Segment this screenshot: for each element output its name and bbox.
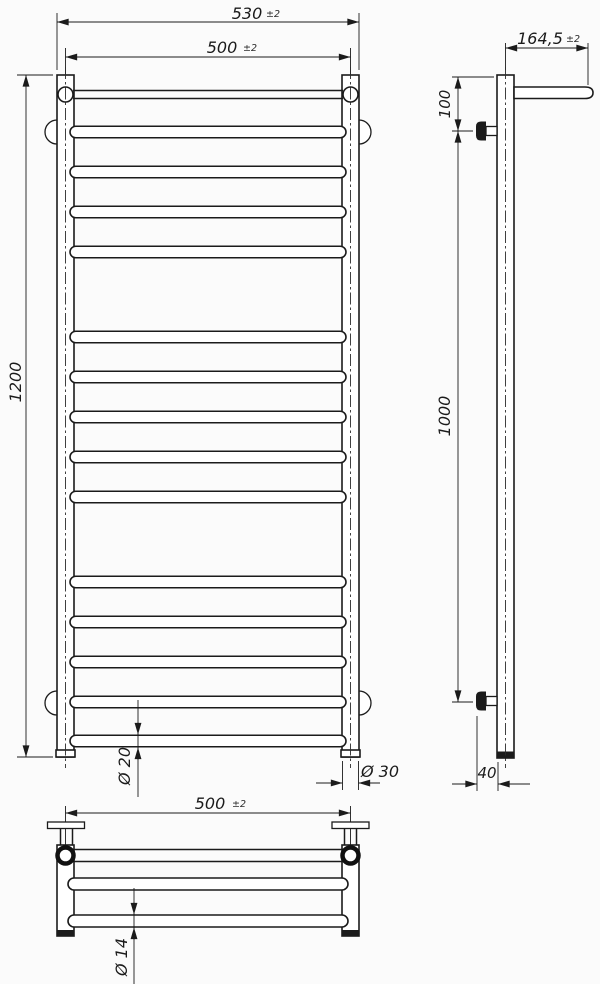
dim-height: 1200: [6, 75, 53, 757]
front-view: 530 ±2 500 ±2 1200: [6, 4, 399, 797]
bottom-left-flange: [48, 822, 85, 846]
rung: [70, 616, 346, 628]
dim-bracket-span: 1000: [435, 131, 473, 702]
shelf-tube: [68, 878, 348, 890]
drawing-canvas: 530 ±2 500 ±2 1200: [0, 0, 600, 984]
bottom-tubes: [68, 878, 348, 927]
dim-outer-width-tolerance: ±2: [266, 9, 280, 20]
rung: [70, 576, 346, 588]
dim-bracket-span-value: 1000: [435, 396, 454, 437]
side-bottom-bracket: [476, 692, 497, 711]
side-view: 164,5 ±2 100 1000: [435, 29, 593, 791]
dim-inner-width-tolerance: ±2: [243, 43, 257, 54]
dim-depth-tolerance: ±2: [566, 34, 580, 45]
bottom-left-post-end: [57, 930, 74, 936]
rung: [70, 411, 346, 423]
rung: [70, 491, 346, 503]
dim-bottom-width-value: 500: [195, 794, 226, 813]
side-top-bracket: [476, 122, 497, 141]
rung: [70, 371, 346, 383]
dim-depth-value: 164,5: [517, 29, 563, 48]
rung: [70, 656, 346, 668]
rung: [70, 166, 346, 178]
rung: [70, 451, 346, 463]
dim-outer-width: 530 ±2: [57, 4, 359, 70]
dim-top-offset-value: 100: [436, 90, 454, 119]
dim-tube-diameter: Ø 14: [112, 888, 134, 984]
shelf-tube: [68, 915, 348, 927]
front-rungs: [70, 126, 346, 747]
rung: [70, 735, 346, 747]
rung: [70, 696, 346, 708]
side-shelf-arm: [514, 87, 593, 99]
dim-rung-diameter: Ø 20: [115, 700, 138, 797]
bottom-view: 500 ±2 Ø 14: [48, 794, 370, 984]
dim-bottom-width-tolerance: ±2: [232, 799, 246, 810]
rung: [70, 126, 346, 138]
rung: [70, 246, 346, 258]
dim-inner-width-value: 500: [207, 38, 238, 57]
bottom-right-post-end: [342, 930, 359, 936]
dim-rung-diameter-value: Ø 20: [115, 747, 134, 786]
rung: [70, 206, 346, 218]
dim-post-diameter-value: Ø 30: [360, 762, 399, 781]
dim-tube-diameter-value: Ø 14: [112, 938, 131, 977]
dim-post-diameter: Ø 30: [316, 761, 399, 790]
rung: [70, 331, 346, 343]
dim-wall-offset: 40: [452, 716, 530, 791]
dim-bottom-width: 500 ±2: [66, 794, 351, 848]
dim-outer-width-value: 530: [232, 4, 263, 23]
dim-inner-width: 500 ±2: [66, 38, 351, 86]
dim-wall-offset-value: 40: [477, 764, 496, 782]
towel-rail-drawing: 530 ±2 500 ±2 1200: [0, 0, 600, 984]
bottom-right-bracket-ring: [343, 848, 359, 864]
bottom-left-bracket-ring: [58, 848, 74, 864]
dim-height-value: 1200: [6, 362, 25, 403]
dim-depth: 164,5 ±2: [506, 29, 589, 85]
